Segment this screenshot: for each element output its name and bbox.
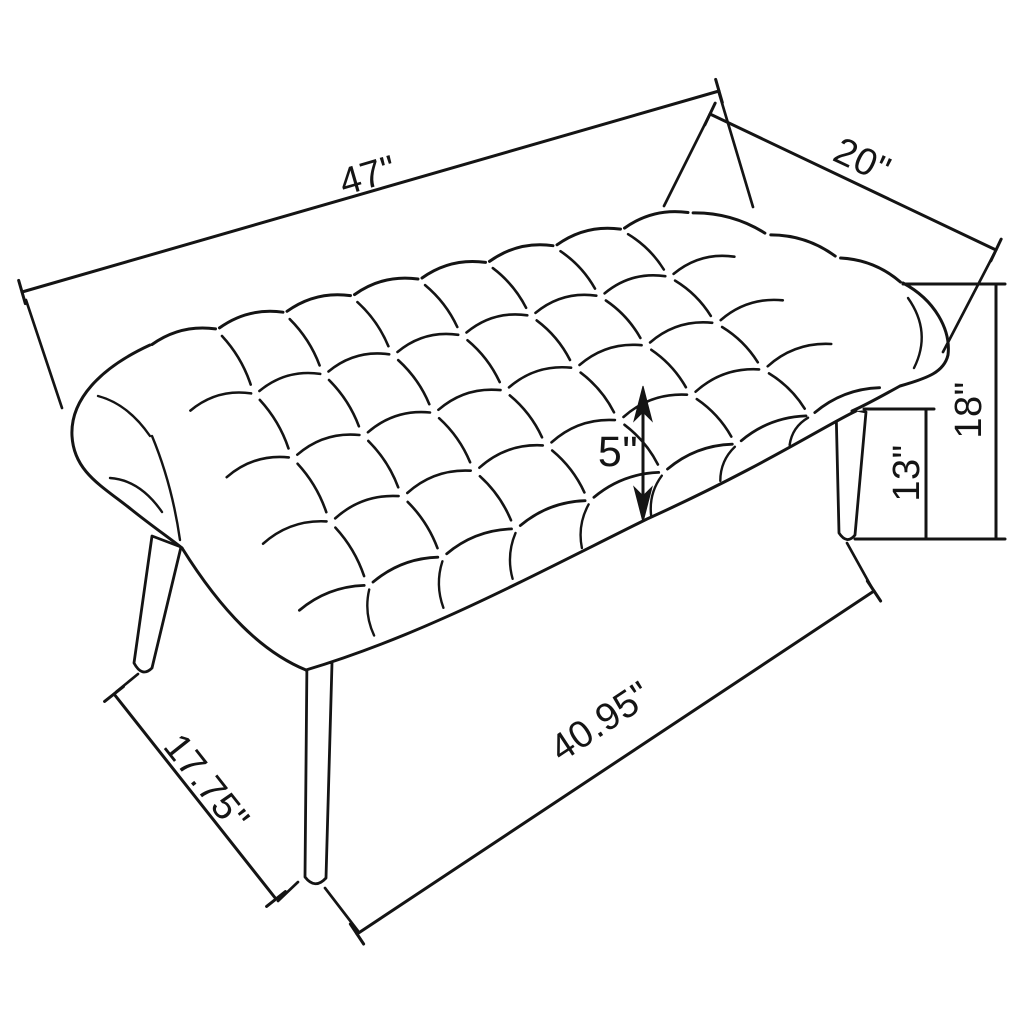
dim-label-overall-depth: 20": [827, 130, 897, 192]
dim-label-overall-height: 18": [948, 381, 990, 438]
dim-label-cushion-thickness: 5": [598, 428, 638, 476]
bench-dimension-diagram: 47" 20" 18" 13" 5" 40.95" 17.75": [0, 0, 1024, 1024]
dim-label-base-depth: 17.75": [155, 726, 257, 840]
diagram-canvas: 47" 20" 18" 13" 5" 40.95" 17.75": [0, 0, 1024, 1024]
dim-label-base-length: 40.95": [543, 674, 659, 771]
dim-label-leg-height: 13": [886, 444, 928, 501]
dim-label-overall-length: 47": [335, 148, 402, 204]
